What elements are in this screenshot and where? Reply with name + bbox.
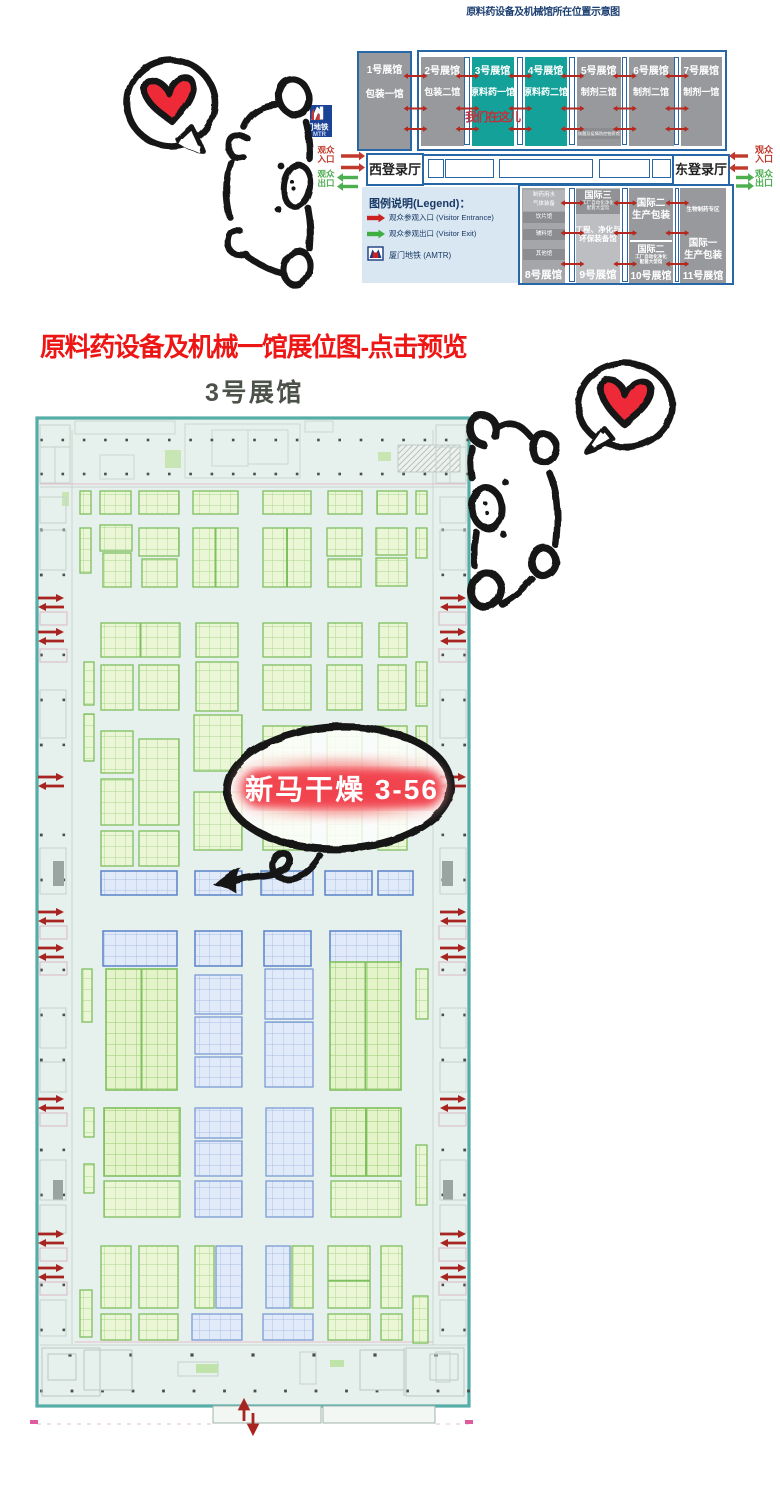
svg-text:MTR: MTR	[313, 132, 327, 138]
svg-text:新马干燥 3-56: 新马干燥 3-56	[245, 774, 439, 805]
